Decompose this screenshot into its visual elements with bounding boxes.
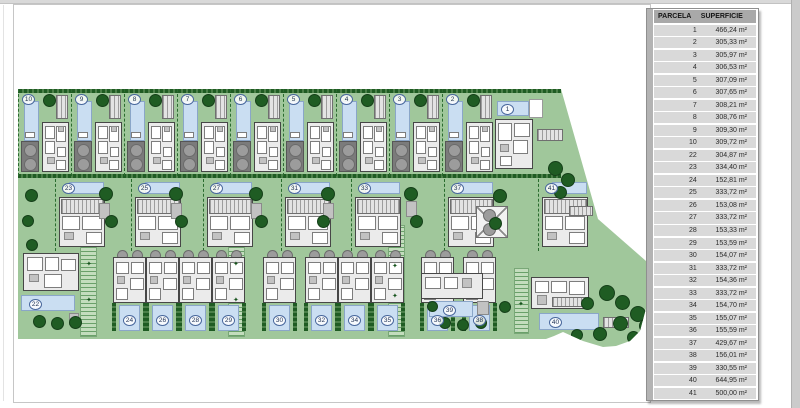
terrace bbox=[131, 132, 141, 138]
tree-icon bbox=[51, 317, 64, 330]
tree-icon bbox=[43, 94, 56, 107]
tree-icon bbox=[467, 94, 480, 107]
room bbox=[163, 147, 172, 157]
tree-icon bbox=[317, 215, 330, 228]
gray-tree-icon bbox=[395, 158, 408, 171]
driveway-car bbox=[569, 206, 593, 216]
room bbox=[27, 257, 43, 271]
room bbox=[355, 278, 369, 290]
hedge-strip bbox=[304, 303, 308, 331]
plot-hedge bbox=[284, 89, 337, 93]
tree-icon bbox=[619, 177, 635, 193]
gray-tree-icon bbox=[236, 144, 249, 157]
room bbox=[321, 160, 331, 170]
tree-planter bbox=[21, 141, 39, 172]
pergola-roof bbox=[209, 199, 252, 214]
terrace bbox=[343, 132, 353, 138]
table-row: 9309,30 m² bbox=[654, 125, 756, 136]
room bbox=[266, 262, 279, 274]
shrub-star-icon: ✦ bbox=[392, 293, 398, 300]
villa-plot-top: 8 bbox=[124, 89, 177, 176]
cell-superficie: 307,09 m² bbox=[697, 77, 756, 84]
plot-number-badge: 28 bbox=[189, 315, 202, 326]
plot-number-badge: 35 bbox=[381, 315, 394, 326]
room bbox=[312, 232, 328, 244]
cell-superficie: 334,40 m² bbox=[697, 164, 756, 171]
room bbox=[288, 216, 306, 230]
table-header-row: PARCELA SUPERFICIE bbox=[654, 10, 756, 23]
cell-parcela: 37 bbox=[654, 340, 697, 347]
room bbox=[162, 160, 172, 170]
room bbox=[481, 147, 490, 157]
furniture bbox=[360, 232, 370, 240]
cell-superficie: 155,59 m² bbox=[697, 327, 756, 334]
furniture bbox=[58, 126, 64, 132]
gray-tree-icon bbox=[183, 158, 196, 171]
table-row: 28153,33 m² bbox=[654, 225, 756, 236]
table-row: 3305,97 m² bbox=[654, 50, 756, 61]
plot-number-badge: 25 bbox=[138, 183, 151, 194]
table-row: 10309,72 m² bbox=[654, 137, 756, 148]
room bbox=[341, 288, 353, 300]
room bbox=[322, 278, 336, 290]
plot-number-badge: 30 bbox=[273, 315, 286, 326]
furniture bbox=[471, 157, 479, 164]
hedge-strip bbox=[262, 303, 266, 331]
cell-parcela: 2 bbox=[654, 39, 697, 46]
villa-plot-bottom: 26 bbox=[146, 257, 179, 335]
plot-number-badge: 36 bbox=[431, 315, 444, 326]
villa-plot-top: 5 bbox=[283, 89, 336, 176]
tree-icon bbox=[615, 295, 630, 310]
furniture bbox=[323, 126, 329, 132]
plot-number-badge: 24 bbox=[123, 315, 136, 326]
room bbox=[257, 126, 267, 139]
tree-icon bbox=[321, 187, 335, 201]
table-row: 39330,55 m² bbox=[654, 363, 756, 374]
table-row: 7308,21 m² bbox=[654, 100, 756, 111]
cell-superficie: 644,95 m² bbox=[697, 377, 756, 384]
tree-icon bbox=[22, 215, 34, 227]
plot-number-badge: 1 bbox=[501, 104, 514, 115]
tree-icon bbox=[249, 187, 263, 201]
parcel-table-panel: PARCELA SUPERFICIE 1466,24 m²2305,33 m²3… bbox=[646, 8, 759, 401]
cell-superficie: 156,01 m² bbox=[697, 352, 756, 359]
furniture bbox=[342, 276, 350, 284]
plot-hedge bbox=[231, 89, 284, 93]
gray-tree-icon bbox=[183, 144, 196, 157]
cell-superficie: 153,59 m² bbox=[697, 240, 756, 247]
cell-parcela: 22 bbox=[654, 152, 697, 159]
tree-icon bbox=[499, 301, 511, 313]
tree-icon bbox=[202, 94, 215, 107]
plot-number-badge: 8 bbox=[128, 94, 141, 105]
cell-superficie: 309,30 m² bbox=[697, 127, 756, 134]
furniture bbox=[259, 157, 267, 164]
room bbox=[197, 262, 210, 274]
plot-number-badge: 27 bbox=[210, 183, 223, 194]
furniture bbox=[206, 157, 214, 164]
room bbox=[480, 160, 490, 170]
gray-tree-icon bbox=[130, 144, 143, 157]
site-plan-screenshot: 1098765432123252731333741242628293032343… bbox=[0, 0, 800, 408]
room bbox=[149, 288, 161, 300]
room bbox=[204, 126, 214, 139]
furniture bbox=[500, 144, 509, 152]
villa-building bbox=[254, 122, 281, 172]
unit-building bbox=[212, 257, 245, 303]
furniture bbox=[462, 278, 472, 288]
plot-number-badge: 34 bbox=[348, 315, 361, 326]
cell-superficie: 307,65 m² bbox=[697, 89, 756, 96]
room bbox=[356, 262, 369, 274]
cell-parcela: 30 bbox=[654, 252, 697, 259]
gray-tree-icon bbox=[289, 144, 302, 157]
room bbox=[363, 141, 373, 154]
table-row: 29153,59 m² bbox=[654, 238, 756, 249]
tree-icon bbox=[629, 161, 644, 176]
room bbox=[269, 147, 278, 157]
tree-icon bbox=[581, 297, 594, 310]
villa-plot-top: 3 bbox=[389, 89, 442, 176]
room bbox=[116, 288, 128, 300]
terrace bbox=[184, 132, 194, 138]
furniture bbox=[217, 126, 223, 132]
room bbox=[57, 147, 66, 157]
tree-icon bbox=[25, 189, 38, 202]
room bbox=[444, 277, 458, 289]
pool-deck bbox=[529, 99, 543, 118]
cell-parcela: 39 bbox=[654, 365, 697, 372]
plot-number-badge: 32 bbox=[315, 315, 328, 326]
unit-building bbox=[371, 257, 404, 303]
room bbox=[416, 126, 426, 139]
hedge-strip bbox=[145, 303, 149, 331]
room bbox=[230, 216, 250, 230]
tree-icon bbox=[105, 215, 118, 228]
gray-tree-icon bbox=[24, 158, 37, 171]
room bbox=[109, 160, 119, 170]
cell-superficie: 153,33 m² bbox=[697, 227, 756, 234]
table-row: 4306,53 m² bbox=[654, 62, 756, 73]
cell-superficie: 306,53 m² bbox=[697, 64, 756, 71]
cell-parcela: 26 bbox=[654, 202, 697, 209]
villa-building bbox=[307, 122, 334, 172]
shrub-star-icon: ✦ bbox=[233, 297, 239, 304]
table-left-strip bbox=[647, 9, 653, 400]
room bbox=[45, 141, 55, 154]
cell-parcela: 23 bbox=[654, 164, 697, 171]
tree-icon bbox=[99, 187, 113, 201]
plan-drawing-frame: 1098765432123252731333741242628293032343… bbox=[13, 4, 651, 403]
room bbox=[378, 216, 398, 230]
room bbox=[551, 281, 567, 293]
shrub-star-icon: ✦ bbox=[233, 261, 239, 268]
cell-parcela: 35 bbox=[654, 315, 697, 322]
tree-icon bbox=[255, 215, 268, 228]
room bbox=[281, 262, 294, 274]
furniture bbox=[290, 232, 300, 240]
villa-building bbox=[495, 119, 533, 169]
cell-parcela: 41 bbox=[654, 390, 697, 397]
room bbox=[322, 147, 331, 157]
tree-icon bbox=[548, 161, 563, 176]
room bbox=[341, 262, 354, 274]
cell-parcela: 7 bbox=[654, 102, 697, 109]
room bbox=[375, 147, 384, 157]
room bbox=[374, 288, 386, 300]
garage-pergola bbox=[321, 95, 333, 119]
cell-superficie: 154,07 m² bbox=[697, 252, 756, 259]
cell-parcela: 4 bbox=[654, 64, 697, 71]
furniture bbox=[482, 126, 488, 132]
room bbox=[310, 126, 320, 139]
room bbox=[98, 126, 108, 139]
hedge-strip bbox=[401, 303, 405, 331]
shrub-star-icon: ✦ bbox=[392, 263, 398, 270]
site-area: 1098765432123252731333741242628293032343… bbox=[18, 89, 648, 349]
gray-tree-icon bbox=[342, 144, 355, 157]
garage-pergola bbox=[268, 95, 280, 119]
cell-superficie: 333,72 m² bbox=[697, 189, 756, 196]
room bbox=[565, 216, 585, 230]
room bbox=[151, 126, 161, 139]
table-row: 32154,36 m² bbox=[654, 275, 756, 286]
furniture bbox=[375, 276, 383, 284]
room bbox=[266, 288, 278, 300]
room bbox=[310, 141, 320, 154]
room bbox=[151, 141, 161, 154]
cell-superficie: 154,36 m² bbox=[697, 277, 756, 284]
room bbox=[62, 216, 80, 230]
room bbox=[569, 232, 585, 244]
furniture bbox=[216, 276, 224, 284]
room bbox=[210, 216, 228, 230]
pergola-roof bbox=[61, 199, 104, 214]
room bbox=[308, 288, 320, 300]
tree-icon bbox=[630, 306, 646, 322]
furniture bbox=[183, 276, 191, 284]
room bbox=[215, 160, 225, 170]
room bbox=[98, 141, 108, 154]
room bbox=[196, 278, 210, 290]
table-row: 5307,09 m² bbox=[654, 75, 756, 86]
shrub-star-icon: ✦ bbox=[86, 261, 92, 268]
furniture bbox=[537, 295, 547, 305]
villa-building bbox=[542, 197, 588, 247]
tree-icon bbox=[175, 215, 188, 228]
plot-number-badge: 22 bbox=[29, 299, 42, 310]
plot-number-badge: 5 bbox=[287, 94, 300, 105]
furniture bbox=[111, 126, 117, 132]
garage-pergola bbox=[56, 95, 68, 119]
room bbox=[229, 278, 243, 290]
room bbox=[382, 232, 398, 244]
gray-tree-icon bbox=[236, 158, 249, 171]
room bbox=[374, 160, 384, 170]
table-row: 8308,76 m² bbox=[654, 112, 756, 123]
table-row: 40644,95 m² bbox=[654, 375, 756, 386]
furniture bbox=[47, 157, 55, 164]
room bbox=[216, 147, 225, 157]
villa-plot-bottom: 29 bbox=[212, 257, 245, 335]
hedge-strip bbox=[112, 303, 116, 331]
table-row: 30154,07 m² bbox=[654, 250, 756, 261]
table-row: 6307,65 m² bbox=[654, 87, 756, 98]
room bbox=[323, 262, 336, 274]
hedge-strip bbox=[493, 303, 497, 331]
cell-superficie: 429,67 m² bbox=[697, 340, 756, 347]
unit-building bbox=[338, 257, 371, 303]
gray-tree-icon bbox=[289, 158, 302, 171]
plot-number-badge: 7 bbox=[181, 94, 194, 105]
room bbox=[416, 141, 426, 154]
villa-plot-bottom: 30 bbox=[263, 257, 296, 335]
cell-parcela: 24 bbox=[654, 177, 697, 184]
room bbox=[428, 147, 437, 157]
villa-building bbox=[148, 122, 175, 172]
villa-plot-top: 10 bbox=[18, 89, 71, 176]
furniture bbox=[365, 157, 373, 164]
villa-building bbox=[201, 122, 228, 172]
cell-parcela: 25 bbox=[654, 189, 697, 196]
right-scrollbar-band[interactable] bbox=[791, 0, 800, 408]
furniture bbox=[153, 157, 161, 164]
hedge-strip bbox=[337, 303, 341, 331]
room bbox=[363, 126, 373, 139]
tree-icon bbox=[69, 316, 82, 329]
table-row: 33333,72 m² bbox=[654, 288, 756, 299]
plot-number-badge: 37 bbox=[451, 183, 464, 194]
table-row: 34154,70 m² bbox=[654, 300, 756, 311]
tree-planter bbox=[286, 141, 304, 172]
gray-tree-icon bbox=[448, 144, 461, 157]
terrace bbox=[290, 132, 300, 138]
plot-number-badge: 40 bbox=[549, 317, 562, 328]
cell-superficie: 308,76 m² bbox=[697, 114, 756, 121]
furniture bbox=[429, 126, 435, 132]
gray-tree-icon bbox=[24, 144, 37, 157]
villa-building bbox=[360, 122, 387, 172]
room bbox=[569, 281, 585, 295]
furniture bbox=[453, 232, 463, 240]
gray-tree-icon bbox=[77, 144, 90, 157]
hedge-strip bbox=[370, 303, 374, 331]
tree-icon bbox=[489, 217, 502, 230]
furniture bbox=[547, 232, 557, 240]
room bbox=[513, 140, 528, 154]
plot-hedge bbox=[178, 89, 231, 93]
villa-building bbox=[421, 273, 483, 299]
cell-parcela: 9 bbox=[654, 127, 697, 134]
villa-plot-bottom: 24 bbox=[113, 257, 146, 335]
tree-planter bbox=[339, 141, 357, 172]
room bbox=[469, 141, 479, 154]
villa-plot-bottom: 35 bbox=[371, 257, 404, 335]
plot-number-badge: 4 bbox=[340, 94, 353, 105]
villa-building bbox=[466, 122, 493, 172]
tree-planter bbox=[233, 141, 251, 172]
table-row: 24152,81 m² bbox=[654, 175, 756, 186]
table-row: 37429,67 m² bbox=[654, 338, 756, 349]
equipment bbox=[477, 301, 489, 315]
hedge-strip bbox=[211, 303, 215, 331]
tree-icon bbox=[96, 94, 109, 107]
cell-superficie: 333,72 m² bbox=[697, 214, 756, 221]
furniture bbox=[150, 276, 158, 284]
room bbox=[514, 123, 530, 137]
villa-plot-top: 7 bbox=[177, 89, 230, 176]
plot-number-badge: 31 bbox=[288, 183, 301, 194]
cell-superficie: 309,72 m² bbox=[697, 139, 756, 146]
cell-parcela: 38 bbox=[654, 352, 697, 359]
room bbox=[162, 232, 178, 244]
cell-parcela: 10 bbox=[654, 139, 697, 146]
tree-icon bbox=[457, 319, 469, 331]
table-row: 1466,24 m² bbox=[654, 25, 756, 36]
unit-building bbox=[113, 257, 146, 303]
room bbox=[215, 262, 228, 274]
plot-hedge bbox=[337, 89, 390, 93]
cell-parcela: 5 bbox=[654, 77, 697, 84]
parcel-table: PARCELA SUPERFICIE 1466,24 m²2305,33 m²3… bbox=[654, 10, 756, 399]
villa-building bbox=[95, 122, 122, 172]
driveway-car bbox=[537, 129, 563, 141]
table-row: 36155,59 m² bbox=[654, 325, 756, 336]
pergola-roof bbox=[357, 199, 400, 214]
cell-superficie: 304,87 m² bbox=[697, 152, 756, 159]
plot-number-badge: 33 bbox=[358, 183, 371, 194]
table-row: 27333,72 m² bbox=[654, 212, 756, 223]
tree-icon bbox=[591, 144, 604, 157]
tree-icon bbox=[361, 94, 374, 107]
garage-pergola bbox=[215, 95, 227, 119]
room bbox=[56, 160, 66, 170]
table-row: 23334,40 m² bbox=[654, 162, 756, 173]
room bbox=[280, 278, 294, 290]
cell-superficie: 153,08 m² bbox=[697, 202, 756, 209]
plot-hedge bbox=[390, 89, 443, 93]
room bbox=[268, 160, 278, 170]
table-row: 26153,08 m² bbox=[654, 200, 756, 211]
table-row: 2305,33 m² bbox=[654, 37, 756, 48]
villa-plot-bottom: 34 bbox=[338, 257, 371, 335]
room bbox=[149, 262, 162, 274]
plot-hedge bbox=[125, 89, 178, 93]
furniture bbox=[418, 157, 426, 164]
terrace bbox=[396, 132, 406, 138]
cell-superficie: 152,81 m² bbox=[697, 177, 756, 184]
terrace bbox=[25, 132, 35, 138]
room bbox=[451, 216, 469, 230]
plot-hedge bbox=[443, 89, 496, 93]
tree-icon bbox=[561, 173, 575, 187]
plot-number-badge: 23 bbox=[62, 183, 75, 194]
furniture bbox=[29, 274, 39, 282]
furniture bbox=[100, 157, 108, 164]
tree-icon bbox=[33, 315, 46, 328]
room bbox=[45, 257, 59, 271]
room bbox=[163, 278, 177, 290]
furniture bbox=[140, 232, 150, 240]
villa-building bbox=[207, 197, 253, 247]
tree-planter bbox=[445, 141, 463, 172]
cell-parcela: 28 bbox=[654, 227, 697, 234]
tree-planter bbox=[127, 141, 145, 172]
tree-icon bbox=[599, 285, 615, 301]
shrub-star-icon: ✦ bbox=[86, 297, 92, 304]
tree-planter bbox=[180, 141, 198, 172]
